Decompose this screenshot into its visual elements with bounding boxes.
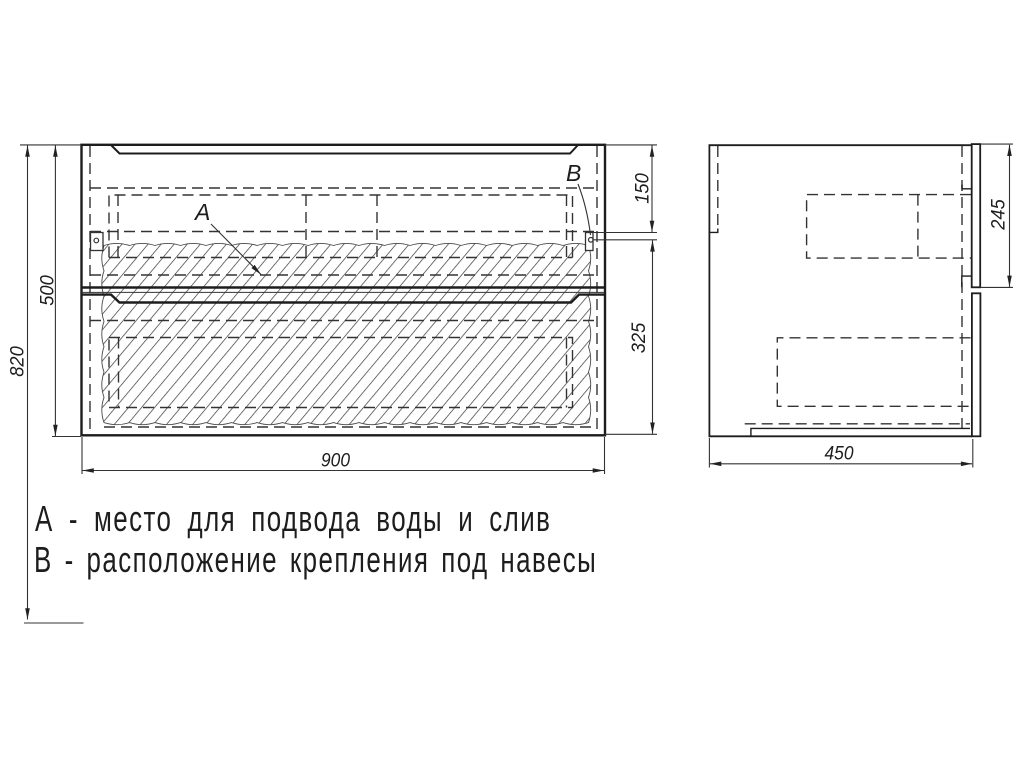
- svg-text:245: 245: [989, 199, 1010, 231]
- svg-text:A: A: [193, 199, 210, 225]
- svg-text:В - расположение крепления под: В - расположение крепления под навесы: [34, 540, 597, 580]
- svg-text:450: 450: [825, 444, 854, 465]
- svg-text:900: 900: [321, 451, 350, 472]
- svg-text:А - место для подвода воды и с: А - место для подвода воды и слив: [35, 499, 551, 539]
- svg-text:500: 500: [38, 275, 59, 306]
- svg-text:B: B: [566, 160, 581, 186]
- svg-text:325: 325: [629, 322, 650, 353]
- svg-text:820: 820: [8, 346, 29, 377]
- svg-text:150: 150: [633, 173, 654, 204]
